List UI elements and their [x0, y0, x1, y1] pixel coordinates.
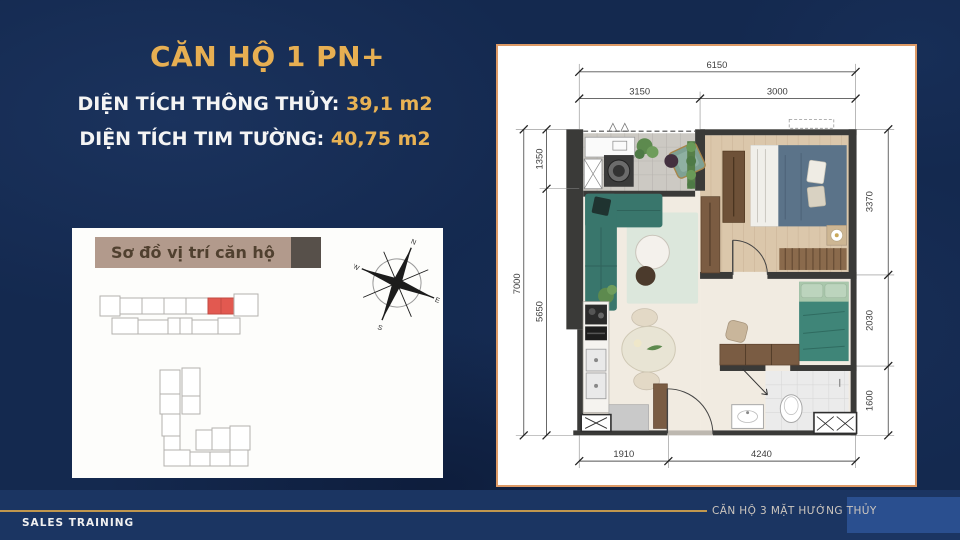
dim-right-upper: 3370 [863, 191, 874, 212]
wall-area-label: DIỆN TÍCH TIM TƯỜNG: [79, 128, 324, 150]
clear-area-line: DIỆN TÍCH THÔNG THỦY: 39,1 m2 [35, 93, 475, 115]
entry-threshold [667, 430, 713, 435]
slab-row-2 [112, 318, 240, 334]
apartment-title: CĂN HỘ 1 PN+ [75, 40, 460, 73]
bench-slatted [779, 248, 846, 270]
location-box-header: Sơ đồ vị trí căn hộ [95, 237, 321, 268]
compass-west-label: W [354, 263, 360, 272]
footer-left-caption: SALES TRAINING [22, 517, 134, 529]
dim-top-left: 3150 [629, 86, 650, 97]
coffee-table [636, 235, 670, 269]
bathroom-sink [732, 405, 764, 429]
kitchen-counter [583, 302, 609, 413]
dim-left-lower: 5650 [534, 301, 545, 322]
floorplan-drawing: 6150 3150 3000 7000 1350 5650 3370 2030 … [498, 46, 915, 485]
footer-gold-line [0, 510, 707, 512]
ac-unit-dashed [789, 119, 834, 128]
slide-background: CĂN HỘ 1 PN+ DIỆN TÍCH THÔNG THỦY: 39,1 … [0, 0, 960, 540]
sofa-pillow [591, 196, 611, 216]
dim-right-middle: 2030 [863, 310, 874, 331]
compass-icon: N E S W [354, 236, 440, 330]
building-lshape-diagram [134, 366, 254, 471]
compass-south-label: S [376, 324, 383, 330]
footer-right-caption: CĂN HỘ 3 MẶT HƯỚNG THỦY [712, 505, 877, 517]
location-box: Sơ đồ vị trí căn hộ [72, 228, 443, 478]
compass-north-label: N [410, 238, 417, 246]
dim-left-upper: 1350 [534, 149, 545, 170]
compass-rose: N E S W [354, 236, 440, 330]
clear-area-label: DIỆN TÍCH THÔNG THỦY: [77, 93, 339, 115]
bedside-table [827, 225, 847, 245]
dim-left-total: 7000 [511, 273, 522, 294]
entry-mat [609, 405, 649, 431]
dim-right-lower: 1600 [863, 390, 874, 411]
entry-cabinet [654, 384, 668, 429]
building-slab-diagram [96, 292, 266, 344]
dim-bottom-right: 4240 [751, 448, 772, 459]
decor-sphere [636, 266, 656, 286]
wall-area-value: 40,75 m2 [331, 128, 431, 150]
dim-top-right: 3000 [767, 86, 788, 97]
compass-east-label: E [434, 297, 440, 305]
location-box-title: Sơ đồ vị trí căn hộ [95, 237, 291, 268]
slab-row-1 [100, 294, 258, 316]
dim-bottom-left: 1910 [613, 448, 634, 459]
bedroom2 [799, 282, 849, 361]
balcony-side-table [664, 154, 678, 168]
lshape-blocks [160, 368, 250, 466]
desk [720, 344, 799, 365]
wall-area-line: DIỆN TÍCH TIM TƯỜNG: 40,75 m2 [35, 128, 475, 150]
balcony-railing [583, 123, 695, 131]
bed-double [751, 145, 847, 226]
location-header-square [291, 237, 321, 268]
dim-top-total: 6150 [706, 59, 727, 70]
toilet [780, 395, 802, 423]
floorplan-panel: 6150 3150 3000 7000 1350 5650 3370 2030 … [496, 44, 917, 487]
clear-area-value: 39,1 m2 [346, 93, 433, 115]
laundry-area [584, 137, 635, 189]
